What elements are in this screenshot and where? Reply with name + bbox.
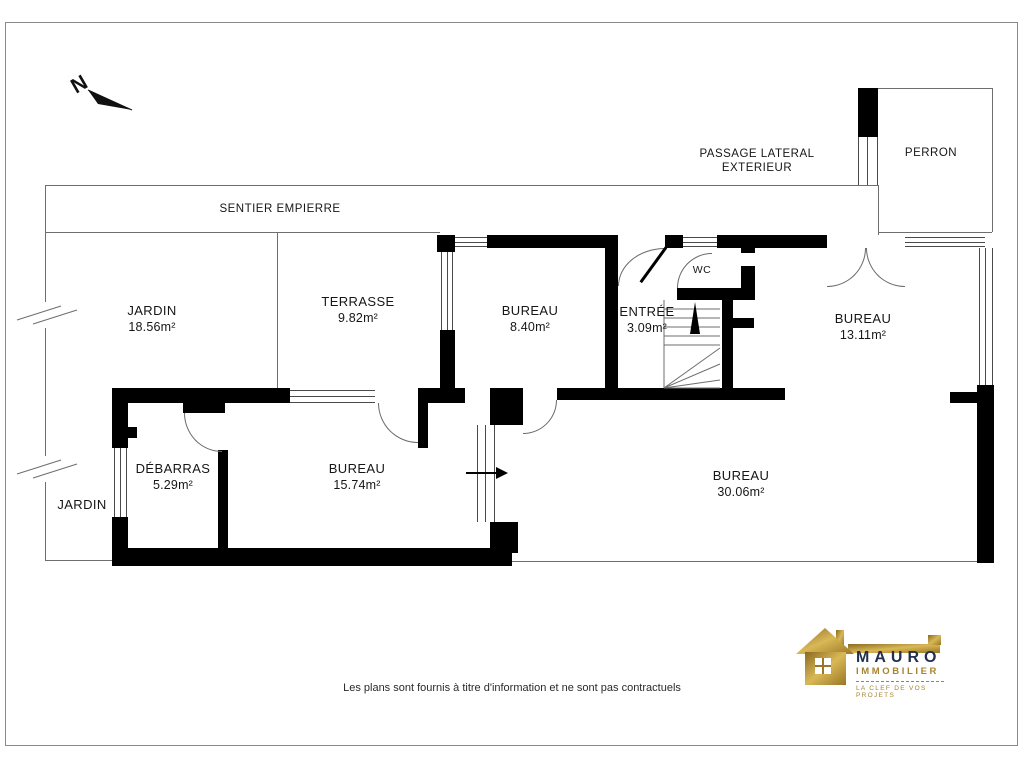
sentier-text: SENTIER EMPIERRE [219,203,340,215]
logo-subtitle-text: IMMOBILIER [856,666,939,677]
perron-text: PERRON [905,147,957,159]
room-name: TERRASSE [321,294,394,309]
passage-label: PASSAGE LATERAL EXTERIEUR [699,147,814,176]
wall-segment [112,548,512,566]
wall-segment [977,385,994,563]
wall-segment [440,330,455,390]
room-name: ENTRÉE [619,304,674,319]
window-pane [905,242,985,243]
room-label-bureau-1311: BUREAU 13.11m² [835,311,892,343]
wall-segment [218,450,228,552]
boundary-line [45,560,113,561]
window [290,390,375,403]
break-mark [15,296,79,332]
room-name: JARDIN [127,303,176,318]
boundary-line [45,232,440,233]
wall-segment [722,318,754,328]
wall-segment [112,390,128,448]
room-label-wc: WC [693,264,712,276]
passage-line2: EXTERIEUR [722,162,792,174]
room-area: 3.09m² [627,321,667,335]
wall-segment [665,235,683,248]
window [905,237,985,247]
wall-segment [755,235,827,248]
room-name: BUREAU [502,303,559,318]
wall-segment [183,403,225,413]
garden-terrace-divider-line [277,233,278,389]
wall-segment [490,388,523,425]
room-label-bureau-840: BUREAU 8.40m² [502,303,559,335]
window [114,448,127,517]
floor-plan-page: N [0,0,1024,768]
perron-label: PERRON [905,146,957,160]
window-pane [120,448,121,517]
north-letter: N [67,71,92,99]
boundary-line [45,185,46,560]
direction-arrow-head [496,467,508,479]
room-name: BUREAU [835,311,892,326]
room-area: 18.56m² [128,320,175,334]
window-pane [455,242,487,243]
wall-segment [112,388,290,403]
room-label-jardin: JARDIN 18.56m² [127,303,176,335]
perron-line [878,232,992,233]
break-mark [15,450,79,486]
window-pane [447,252,448,330]
passage-end-line [878,185,879,235]
wall-segment [128,427,137,438]
room-label-debarras: DÉBARRAS 5.29m² [136,461,211,493]
window [979,248,993,385]
room-label-entree: ENTRÉE 3.09m² [619,304,674,336]
passage-line1: PASSAGE LATERAL [699,148,814,160]
perron-line [878,88,992,89]
wall-segment [741,266,755,300]
room-area: 8.40m² [510,320,550,334]
logo-brand-text: MAURO [856,649,941,667]
wall-segment [605,248,618,388]
boundary-line [45,185,437,186]
window [455,237,487,247]
room-label-terrasse: TERRASSE 9.82m² [321,294,394,326]
room-area: 15.74m² [333,478,380,492]
window-pane [867,137,868,185]
room-label-bureau-3006: BUREAU 30.06m² [713,468,770,500]
window [683,237,717,247]
window [858,137,878,185]
logo-divider [856,681,944,682]
wall-segment [418,403,428,448]
agency-logo: MAURO IMMOBILIER LA CLEF DE VOS PROJETS [792,618,967,704]
room-name: BUREAU [329,461,386,476]
wall-segment [437,235,455,252]
room-area: 30.06m² [717,485,764,499]
room-name: BUREAU [713,468,770,483]
room-area: 5.29m² [153,478,193,492]
wall-segment [858,88,878,137]
perron-line [992,88,993,232]
window-pane [985,248,986,385]
room-name: WC [693,264,712,276]
room-name: DÉBARRAS [136,461,211,476]
boundary-line [437,185,878,186]
window-pane [683,242,717,243]
room-label-jardin-2: JARDIN [57,497,106,513]
room-label-bureau-1574: BUREAU 15.74m² [329,461,386,493]
building-bottom-line [512,561,978,562]
sentier-label: SENTIER EMPIERRE [219,202,340,216]
wall-segment [741,235,755,253]
logo-tagline-text: LA CLEF DE VOS PROJETS [856,685,967,699]
wall-segment [950,392,977,403]
wall-segment [418,388,465,403]
direction-arrow [466,472,496,474]
window-pane [290,396,375,397]
room-area: 13.11m² [840,328,886,342]
wall-segment [487,235,618,248]
room-name: JARDIN [57,497,106,512]
window [441,252,453,330]
room-area: 9.82m² [338,311,378,325]
north-arrow: N [64,64,148,126]
